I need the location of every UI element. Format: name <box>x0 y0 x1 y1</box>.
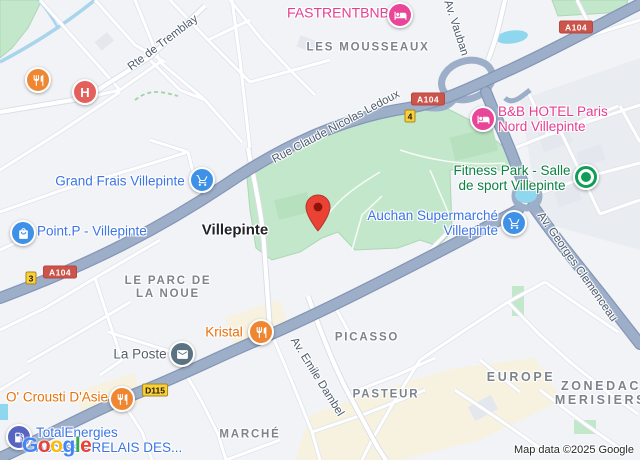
restaurant-icon <box>116 393 129 406</box>
google-logo-letter: e <box>80 434 91 457</box>
restaurant-pin-kristal[interactable] <box>248 319 274 345</box>
destination-marker[interactable] <box>305 194 331 232</box>
envelope-icon <box>176 348 189 361</box>
poi-label-bb-hotel[interactable]: B&B HOTEL Paris Nord Villepinte <box>498 104 608 134</box>
gym-pin-fitness-park[interactable] <box>573 164 599 190</box>
area-label-le-parc-de-la-noue: LE PARC DE LA NOUE <box>125 275 212 301</box>
shopping-cart-icon <box>196 174 209 187</box>
bed-icon <box>394 9 407 22</box>
hotel-pin-bb-hotel[interactable] <box>470 106 496 132</box>
shopping-cart-icon <box>508 217 521 230</box>
restaurant-icon <box>255 326 268 339</box>
gym-icon <box>578 169 594 185</box>
area-label-marche: MARCHÉ <box>219 429 280 442</box>
poi-label-la-poste[interactable]: La Poste <box>113 347 166 362</box>
area-label-zonedac-merisiers: ZONEDAC MERISIERS <box>555 379 640 407</box>
google-logo[interactable]: Google <box>22 434 91 458</box>
route-shield-a104: A104 <box>43 266 77 279</box>
route-shield-exit3: 3 <box>26 272 37 285</box>
hospital-icon: H <box>80 86 89 99</box>
poi-label-grand-frais[interactable]: Grand Frais Villepinte <box>55 174 185 189</box>
area-label-pasteur: PASTEUR <box>353 389 420 402</box>
area-label-europe: EUROPE <box>487 370 555 384</box>
hospital-pin-unnamed[interactable]: H <box>72 79 98 105</box>
area-label-picasso: PICASSO <box>335 332 399 345</box>
google-logo-letter: G <box>22 434 38 457</box>
restaurant-icon <box>32 74 45 87</box>
map-canvas[interactable]: A104 A104 A104 3 4 D115 Rte de Tremblay … <box>0 0 640 460</box>
route-shield-a104: A104 <box>411 93 445 106</box>
poi-label-fastrentbnb[interactable]: FASTRENTBNB <box>287 6 389 21</box>
poi-label-point-p[interactable]: Point.P - Villepinte <box>37 224 147 239</box>
map-attribution: Map data ©2025 Google <box>514 444 634 456</box>
poi-label-o-crousti-d-asie[interactable]: O' Crousti D'Asie <box>6 390 108 405</box>
city-label-villepinte: Villepinte <box>202 222 268 239</box>
google-logo-letter: o <box>38 434 50 457</box>
route-shield-a104: A104 <box>559 21 593 34</box>
cart-pin-grand-frais[interactable] <box>189 167 215 193</box>
poi-label-kristal[interactable]: Kristal <box>205 325 243 340</box>
bed-icon <box>477 113 490 126</box>
poi-label-auchan[interactable]: Auchan Supermarché Villepinte <box>367 208 498 238</box>
restaurant-pin-unnamed[interactable] <box>25 67 51 93</box>
poi-label-fitness-park[interactable]: Fitness Park - Salle de sport Villepinte <box>453 163 570 193</box>
post-office-pin-la-poste[interactable] <box>169 341 195 367</box>
area-label-les-mousseaux: LES MOUSSEAUX <box>306 42 429 55</box>
google-logo-letter: g <box>63 434 75 457</box>
route-shield-d115: D115 <box>142 384 168 397</box>
store-pin-point-p[interactable] <box>10 220 36 246</box>
cart-pin-auchan[interactable] <box>501 210 527 236</box>
hotel-pin-fastrentbnb[interactable] <box>387 2 413 28</box>
shopping-bag-icon <box>17 227 30 240</box>
restaurant-pin-o-crousti[interactable] <box>109 386 135 412</box>
route-shield-exit4: 4 <box>405 110 416 123</box>
google-logo-letter: o <box>50 434 62 457</box>
